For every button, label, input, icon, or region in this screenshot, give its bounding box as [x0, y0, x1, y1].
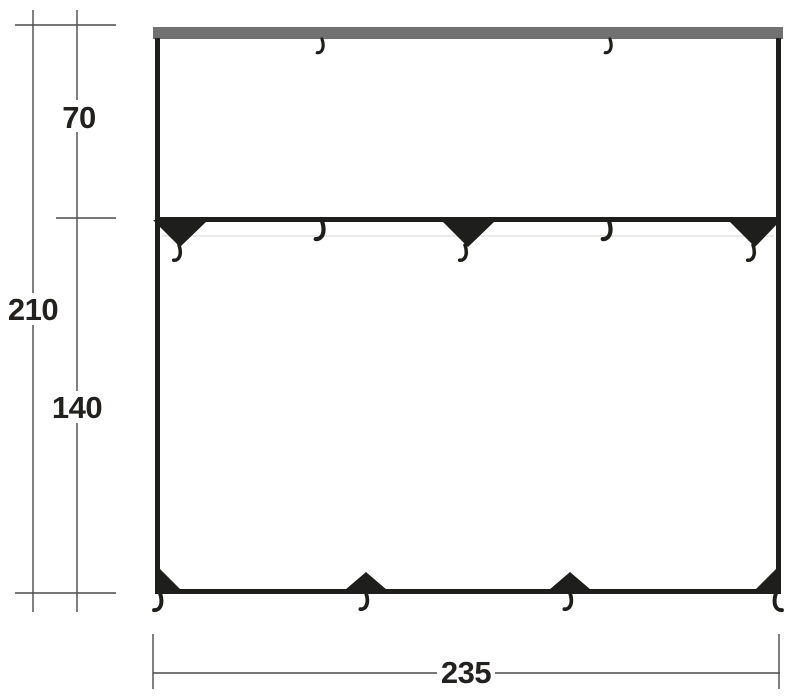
- guy-hook-icon-bottom-left-corner: [154, 593, 161, 610]
- guy-hook-icon-top-left: [317, 39, 323, 53]
- tarp-dimension-diagram: 70 210 140 235: [0, 0, 803, 698]
- dim-label-width: 235: [441, 655, 491, 690]
- guy-hook-icon-seam-patch-center: [460, 245, 467, 260]
- panel-left-edge: [155, 38, 160, 594]
- guy-hook-icon-seam-patch-left: [174, 245, 181, 260]
- guy-hook-icon-bottom-right-corner: [775, 593, 782, 610]
- reinforcement-patch-triangle-seam-left: [153, 220, 208, 247]
- pole-sleeve-bar: [153, 27, 783, 39]
- guy-hook-icon-bottom-mid-right: [564, 593, 571, 609]
- guy-hook-icon-bottom-mid-left: [360, 593, 367, 609]
- diagram-canvas: 70 210 140 235: [0, 0, 803, 698]
- reinforcement-patch-triangle-seam-right: [728, 220, 781, 247]
- dim-label-upper-section: 70: [62, 100, 95, 135]
- dim-label-total-height: 210: [8, 292, 58, 327]
- reinforcement-patch-corner-bottom-left: [155, 564, 185, 594]
- tarp-panel: [153, 27, 783, 610]
- reinforcement-patch-triangle-bottom-mid-left: [345, 572, 387, 590]
- guy-hook-icon-seam-patch-right: [748, 245, 755, 260]
- reinforcement-patch-triangle-seam-center: [441, 220, 496, 247]
- dim-label-lower-section: 140: [52, 390, 102, 425]
- dimension-annotations: 70 210 140 235: [6, 10, 780, 690]
- reinforcement-patch-triangle-bottom-mid-right: [549, 572, 591, 590]
- reinforcement-patch-corner-bottom-right: [751, 564, 781, 594]
- guy-hook-icon-top-right: [605, 39, 611, 53]
- panel-right-edge: [776, 38, 781, 594]
- panel-bottom-edge: [155, 589, 781, 594]
